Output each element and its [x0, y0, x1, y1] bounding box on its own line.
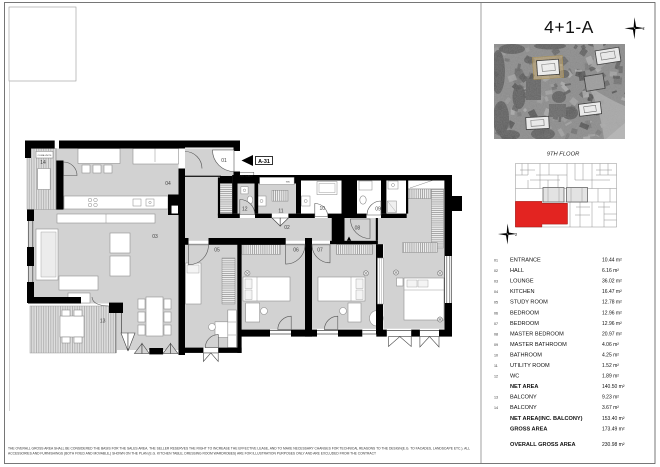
svg-text:01: 01 — [494, 259, 498, 263]
svg-text:12: 12 — [494, 375, 498, 379]
svg-text:16.47 m²: 16.47 m² — [602, 289, 622, 295]
svg-text:1.52 m²: 1.52 m² — [602, 363, 619, 369]
svg-text:14: 14 — [40, 160, 46, 166]
svg-text:1.89 m²: 1.89 m² — [602, 374, 619, 380]
svg-text:OVERALL GROSS AREA: OVERALL GROSS AREA — [510, 442, 576, 448]
svg-text:9TH FLOOR: 9TH FLOOR — [547, 152, 580, 158]
svg-text:09: 09 — [375, 207, 381, 213]
svg-text:NET AREA: NET AREA — [510, 384, 538, 390]
svg-text:z: z — [515, 232, 517, 237]
svg-text:WC: WC — [510, 374, 519, 380]
svg-text:6.16 m²: 6.16 m² — [602, 268, 619, 274]
svg-text:KITCHEN: KITCHEN — [510, 289, 535, 295]
svg-text:10: 10 — [320, 206, 326, 212]
svg-text:02: 02 — [284, 225, 290, 231]
svg-text:10.44 m²: 10.44 m² — [602, 258, 622, 264]
svg-text:10: 10 — [494, 354, 498, 358]
svg-text:20.97 m²: 20.97 m² — [602, 331, 622, 337]
svg-text:BEDROOM: BEDROOM — [510, 310, 539, 316]
svg-text:02: 02 — [494, 269, 498, 273]
svg-text:STUDY ROOM: STUDY ROOM — [510, 300, 548, 306]
svg-text:04: 04 — [165, 181, 171, 187]
svg-text:14: 14 — [494, 406, 498, 410]
svg-text:BATHROOM: BATHROOM — [510, 353, 542, 359]
svg-text:12: 12 — [242, 207, 248, 213]
svg-text:05: 05 — [214, 248, 220, 254]
svg-text:ENTRANCE: ENTRANCE — [510, 258, 541, 264]
svg-text:08: 08 — [494, 332, 498, 336]
svg-text:4+1-A: 4+1-A — [544, 17, 594, 37]
svg-text:07: 07 — [317, 248, 323, 254]
svg-text:140.50 m²: 140.50 m² — [602, 384, 625, 390]
svg-text:09: 09 — [494, 343, 498, 347]
svg-text:BALCONY: BALCONY — [510, 405, 537, 411]
svg-text:BALCONY: BALCONY — [510, 395, 537, 401]
svg-text:12.96 m²: 12.96 m² — [602, 321, 622, 327]
svg-text:13: 13 — [100, 319, 106, 325]
svg-text:CLIMA UNITS: CLIMA UNITS — [38, 154, 52, 157]
svg-text:08: 08 — [355, 226, 361, 232]
svg-text:ACCESSORIES AND FURNISHINGS (B: ACCESSORIES AND FURNISHINGS (BOTH FIXED … — [8, 452, 376, 456]
svg-text:Shoe Cabinet: Shoe Cabinet — [239, 175, 253, 178]
svg-text:04: 04 — [494, 290, 498, 294]
svg-text:4.25 m²: 4.25 m² — [602, 353, 619, 359]
svg-text:03: 03 — [494, 280, 498, 284]
svg-text:153.40 m²: 153.40 m² — [602, 416, 625, 422]
svg-text:230.98 m²: 230.98 m² — [602, 442, 625, 448]
svg-text:06: 06 — [494, 311, 498, 315]
svg-text:36.02 m²: 36.02 m² — [602, 279, 622, 285]
svg-text:GROSS AREA: GROSS AREA — [510, 426, 547, 432]
svg-text:4.06 m²: 4.06 m² — [602, 342, 619, 348]
svg-text:LOUNGE: LOUNGE — [510, 279, 534, 285]
svg-text:12.96 m²: 12.96 m² — [602, 310, 622, 316]
svg-text:9.23 m²: 9.23 m² — [602, 395, 619, 401]
svg-text:UTILITY ROOM: UTILITY ROOM — [510, 363, 550, 369]
svg-text:06: 06 — [293, 248, 299, 254]
svg-text:11: 11 — [278, 209, 283, 215]
svg-text:01: 01 — [221, 158, 227, 164]
svg-text:07: 07 — [494, 322, 498, 326]
svg-text:3.67 m²: 3.67 m² — [602, 405, 619, 411]
svg-text:13: 13 — [494, 396, 498, 400]
svg-text:05: 05 — [494, 301, 498, 305]
svg-text:MASTER BATHROOM: MASTER BATHROOM — [510, 342, 567, 348]
svg-text:173.49 m²: 173.49 m² — [602, 426, 625, 432]
svg-text:THE OVERALL GROSS AREA SHALL B: THE OVERALL GROSS AREA SHALL BE CONSIDER… — [8, 447, 470, 451]
svg-text:BEDROOM: BEDROOM — [510, 321, 539, 327]
svg-text:W/D: W/D — [286, 182, 291, 184]
svg-text:12.78 m²: 12.78 m² — [602, 300, 622, 306]
svg-text:HALL: HALL — [510, 268, 524, 274]
svg-text:NET AREA(INC. BALCONY): NET AREA(INC. BALCONY) — [510, 416, 583, 422]
svg-text:A-31: A-31 — [258, 159, 270, 165]
svg-text:11: 11 — [494, 364, 498, 368]
svg-text:z: z — [643, 26, 645, 31]
svg-text:03: 03 — [152, 234, 158, 240]
svg-text:MASTER BEDROOM: MASTER BEDROOM — [510, 331, 564, 337]
